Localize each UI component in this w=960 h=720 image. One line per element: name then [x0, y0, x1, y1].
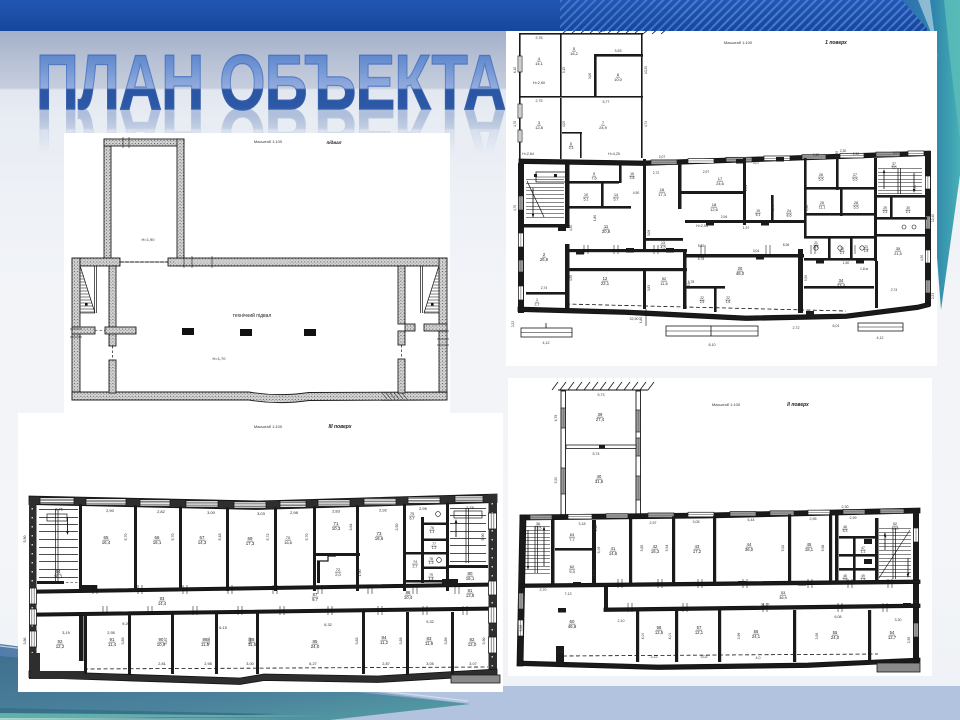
svg-text:11,9: 11,9 — [425, 641, 434, 646]
svg-text:5,50: 5,50 — [804, 275, 808, 281]
svg-text:24,1: 24,1 — [752, 634, 761, 639]
svg-text:2,70: 2,70 — [540, 588, 547, 592]
svg-text:9,20: 9,20 — [122, 622, 129, 626]
svg-text:16,1: 16,1 — [153, 540, 162, 545]
svg-text:4,12: 4,12 — [877, 336, 884, 340]
svg-text:7,13: 7,13 — [565, 592, 572, 596]
svg-text:2,98: 2,98 — [204, 662, 211, 666]
svg-text:2,87: 2,87 — [382, 662, 389, 666]
svg-text:1,6: 1,6 — [726, 300, 731, 304]
svg-text:2,7: 2,7 — [413, 564, 418, 568]
svg-text:1,1: 1,1 — [861, 550, 866, 554]
svg-text:3,0: 3,0 — [892, 166, 897, 170]
svg-text:5,70: 5,70 — [171, 534, 175, 541]
svg-text:Н=2,60: Н=2,60 — [533, 81, 545, 85]
svg-text:3,87: 3,87 — [164, 638, 168, 645]
svg-text:24,0: 24,0 — [831, 635, 840, 640]
svg-text:3,83: 3,83 — [687, 283, 691, 289]
svg-text:3,03: 3,03 — [257, 511, 266, 516]
svg-text:3,00: 3,00 — [207, 510, 216, 515]
svg-text:16,1: 16,1 — [466, 576, 475, 581]
svg-text:Н=2,64: Н=2,64 — [522, 152, 534, 156]
svg-text:3,19: 3,19 — [62, 631, 69, 635]
svg-text:5,48: 5,48 — [218, 534, 222, 541]
svg-text:5,85: 5,85 — [640, 545, 644, 552]
svg-text:5,15: 5,15 — [562, 67, 566, 73]
svg-text:24,23: 24,23 — [761, 603, 770, 607]
svg-text:17,3: 17,3 — [246, 541, 255, 546]
svg-text:12,5: 12,5 — [655, 630, 664, 635]
svg-text:2,42: 2,42 — [594, 525, 598, 532]
svg-text:2,83: 2,83 — [332, 509, 341, 514]
svg-text:2,23: 2,23 — [931, 293, 935, 299]
svg-text:1,50: 1,50 — [843, 261, 850, 265]
svg-text:2,74: 2,74 — [891, 288, 898, 292]
svg-text:III поверх: III поверх — [328, 424, 351, 430]
svg-text:17,3: 17,3 — [658, 192, 667, 197]
svg-text:16,6: 16,6 — [375, 536, 384, 541]
svg-text:9: 9 — [593, 172, 595, 176]
svg-text:20,8: 20,8 — [602, 229, 611, 234]
svg-text:24,6: 24,6 — [716, 181, 725, 186]
svg-text:10,3: 10,3 — [332, 526, 341, 531]
svg-text:2,1: 2,1 — [906, 210, 911, 214]
svg-text:21,5: 21,5 — [894, 251, 903, 256]
svg-text:10: 10 — [584, 193, 588, 197]
svg-text:46,8: 46,8 — [568, 624, 577, 629]
svg-text:10,4: 10,4 — [404, 595, 413, 600]
svg-text:2,8: 2,8 — [630, 176, 635, 180]
svg-text:4,90: 4,90 — [633, 191, 640, 195]
svg-text:5,70: 5,70 — [305, 534, 309, 541]
svg-text:2,95: 2,95 — [810, 517, 817, 521]
svg-text:14,4: 14,4 — [158, 601, 167, 606]
svg-text:5,78: 5,78 — [698, 257, 705, 261]
svg-text:6,01: 6,01 — [833, 324, 840, 328]
svg-text:24,9: 24,9 — [599, 125, 608, 130]
svg-text:1,5: 1,5 — [861, 578, 866, 582]
svg-text:4,05: 4,05 — [562, 121, 566, 127]
svg-text:25: 25 — [820, 201, 824, 205]
svg-text:2,76: 2,76 — [536, 36, 543, 40]
svg-text:Масштаб 1:100: Масштаб 1:100 — [712, 402, 741, 407]
svg-text:2,1: 2,1 — [840, 251, 845, 255]
svg-text:6,27: 6,27 — [309, 662, 316, 666]
svg-text:3,95: 3,95 — [907, 637, 911, 644]
svg-text:2,90: 2,90 — [853, 152, 860, 156]
svg-text:13: 13 — [661, 241, 665, 245]
svg-text:2,82: 2,82 — [157, 509, 166, 514]
svg-text:14,1: 14,1 — [535, 61, 544, 66]
svg-text:1,85: 1,85 — [835, 151, 839, 157]
svg-text:16,3: 16,3 — [651, 549, 660, 554]
svg-text:5,54: 5,54 — [665, 545, 669, 552]
svg-text:4,0: 4,0 — [756, 656, 761, 660]
svg-text:6,08: 6,08 — [835, 615, 842, 619]
svg-text:1,80: 1,80 — [593, 215, 597, 221]
svg-text:6,10: 6,10 — [513, 67, 517, 73]
svg-text:3,03: 3,03 — [592, 570, 596, 577]
svg-text:4,30: 4,30 — [920, 255, 924, 261]
svg-text:5,83: 5,83 — [598, 31, 605, 33]
svg-text:3,86: 3,86 — [207, 638, 211, 645]
svg-text:3,05: 3,05 — [693, 520, 700, 524]
svg-text:2,5: 2,5 — [843, 578, 848, 582]
svg-text:12,6: 12,6 — [710, 207, 719, 212]
svg-text:9,58: 9,58 — [821, 545, 825, 552]
svg-text:5,3: 5,3 — [843, 529, 848, 533]
svg-text:12,40: 12,40 — [931, 214, 935, 222]
svg-text:2,5: 2,5 — [700, 300, 705, 304]
svg-text:12,0: 12,0 — [468, 642, 477, 647]
svg-text:26,9: 26,9 — [540, 257, 549, 262]
svg-text:4,30: 4,30 — [569, 225, 573, 231]
svg-text:5,72: 5,72 — [266, 534, 270, 541]
svg-text:3,86: 3,86 — [23, 638, 27, 645]
svg-text:36,0: 36,0 — [745, 547, 754, 552]
svg-text:8,10: 8,10 — [709, 343, 716, 347]
svg-text:13,5: 13,5 — [535, 526, 542, 530]
svg-text:6,44: 6,44 — [748, 518, 755, 522]
svg-text:3,90: 3,90 — [482, 638, 486, 645]
svg-text:3,85: 3,85 — [248, 638, 252, 645]
svg-text:4,5: 4,5 — [661, 245, 666, 249]
svg-text:5,50: 5,50 — [554, 477, 558, 484]
svg-text:52: 52 — [893, 522, 897, 526]
svg-text:22,1: 22,1 — [601, 281, 610, 286]
svg-text:26: 26 — [819, 173, 823, 177]
svg-text:13,8: 13,8 — [466, 593, 475, 598]
svg-text:4,12: 4,12 — [543, 341, 550, 345]
svg-text:Н=1,70: Н=1,70 — [212, 356, 226, 361]
svg-text:1,1: 1,1 — [430, 530, 435, 534]
svg-text:2,07: 2,07 — [659, 155, 666, 159]
svg-text:31,6: 31,6 — [595, 479, 604, 484]
svg-text:3,02: 3,02 — [701, 655, 708, 659]
svg-text:2,30: 2,30 — [842, 505, 849, 509]
svg-text:3,05: 3,05 — [426, 662, 433, 666]
svg-text:1,8 м: 1,8 м — [860, 267, 869, 271]
svg-text:24: 24 — [787, 209, 791, 213]
svg-text:3,30: 3,30 — [895, 618, 902, 622]
svg-text:14,6: 14,6 — [609, 551, 618, 556]
svg-text:1,42: 1,42 — [914, 600, 918, 607]
svg-text:16,4: 16,4 — [102, 540, 111, 545]
svg-text:3,89: 3,89 — [399, 638, 403, 645]
svg-text:3,06: 3,06 — [588, 73, 592, 79]
svg-text:13,6: 13,6 — [892, 526, 899, 530]
svg-text:2,90: 2,90 — [106, 508, 115, 513]
svg-text:3,50: 3,50 — [395, 524, 399, 531]
svg-text:підвал: підвал — [326, 140, 341, 145]
svg-text:3,07: 3,07 — [753, 161, 760, 165]
svg-text:1,90: 1,90 — [913, 185, 917, 191]
svg-text:3,12: 3,12 — [651, 655, 658, 659]
svg-text:9,7: 9,7 — [312, 597, 318, 602]
svg-text:технічний підвал: технічний підвал — [233, 312, 272, 319]
svg-text:4,7: 4,7 — [814, 245, 819, 249]
svg-text:10,0: 10,0 — [614, 77, 623, 82]
svg-text:1,4: 1,4 — [429, 577, 434, 581]
svg-text:5,5: 5,5 — [819, 177, 824, 181]
svg-text:1,8: 1,8 — [864, 249, 869, 253]
svg-text:3,99: 3,99 — [737, 633, 741, 640]
svg-text:6,32: 6,32 — [324, 623, 331, 627]
svg-text:5,70: 5,70 — [124, 534, 128, 541]
svg-text:7,7: 7,7 — [569, 537, 575, 542]
svg-text:28: 28 — [854, 201, 858, 205]
svg-text:Масштаб 1:100: Масштаб 1:100 — [254, 424, 283, 429]
svg-text:3,83: 3,83 — [355, 638, 359, 645]
svg-text:3,07: 3,07 — [893, 151, 900, 155]
svg-text:9,52: 9,52 — [781, 545, 785, 552]
svg-text:2,99: 2,99 — [850, 516, 857, 520]
svg-text:Масштаб 1:100: Масштаб 1:100 — [254, 139, 283, 144]
svg-text:2,76: 2,76 — [55, 507, 64, 512]
svg-text:12,2: 12,2 — [56, 644, 65, 649]
svg-text:2,7: 2,7 — [535, 302, 540, 306]
svg-text:3,08: 3,08 — [647, 230, 651, 236]
svg-text:5,09: 5,09 — [597, 547, 601, 554]
svg-text:5,1: 5,1 — [584, 197, 589, 201]
svg-text:5,73: 5,73 — [598, 393, 605, 397]
svg-text:2,10: 2,10 — [618, 619, 625, 623]
svg-text:7,6: 7,6 — [591, 177, 596, 181]
svg-text:5,1: 5,1 — [756, 213, 761, 217]
svg-text:2,74: 2,74 — [541, 286, 548, 290]
svg-text:6,15: 6,15 — [219, 626, 226, 630]
svg-text:36,9: 36,9 — [779, 595, 788, 600]
svg-text:3,18: 3,18 — [579, 522, 586, 526]
svg-text:Н=1,90: Н=1,90 — [141, 237, 155, 242]
svg-text:3,07: 3,07 — [469, 662, 476, 666]
svg-text:4,70: 4,70 — [513, 205, 517, 211]
svg-text:11,6: 11,6 — [660, 281, 668, 286]
svg-text:2,72: 2,72 — [793, 326, 800, 330]
svg-text:4,70: 4,70 — [513, 121, 517, 127]
svg-text:36: 36 — [536, 522, 540, 526]
svg-text:1,2: 1,2 — [432, 546, 437, 550]
svg-text:2,0: 2,0 — [335, 572, 341, 577]
svg-text:2,22: 2,22 — [511, 321, 515, 327]
svg-text:2,3: 2,3 — [569, 146, 574, 150]
svg-text:32,50: 32,50 — [630, 317, 639, 321]
svg-text:12,7: 12,7 — [888, 635, 897, 640]
svg-text:5,5: 5,5 — [853, 177, 858, 181]
svg-text:2,99: 2,99 — [419, 506, 428, 511]
svg-text:5,56: 5,56 — [519, 625, 523, 632]
svg-text:2,30: 2,30 — [840, 149, 847, 153]
svg-text:9,23: 9,23 — [557, 650, 564, 654]
svg-text:3,89: 3,89 — [444, 638, 448, 645]
svg-text:2,31: 2,31 — [744, 185, 748, 191]
svg-text:3,89: 3,89 — [121, 638, 125, 645]
svg-text:4,00: 4,00 — [641, 633, 645, 640]
svg-text:4,30: 4,30 — [569, 275, 573, 281]
svg-text:2,40: 2,40 — [771, 205, 775, 211]
svg-text:10,20: 10,20 — [644, 66, 648, 74]
svg-text:2,95: 2,95 — [107, 631, 114, 635]
svg-text:9,32: 9,32 — [426, 620, 433, 624]
svg-text:5,90: 5,90 — [23, 536, 27, 543]
svg-text:2,68: 2,68 — [813, 153, 820, 157]
svg-text:11,1: 11,1 — [819, 205, 826, 209]
svg-text:11,2: 11,2 — [380, 640, 389, 645]
svg-text:8,36: 8,36 — [783, 243, 790, 247]
svg-text:16,8: 16,8 — [284, 540, 293, 545]
svg-text:5,7: 5,7 — [614, 197, 619, 201]
svg-text:4,74: 4,74 — [644, 121, 648, 127]
svg-text:2,98: 2,98 — [290, 510, 299, 515]
svg-text:18,1: 18,1 — [805, 547, 814, 552]
svg-text:3,04: 3,04 — [753, 249, 760, 253]
svg-text:2,94: 2,94 — [721, 215, 728, 219]
svg-text:II поверх: II поверх — [787, 402, 809, 408]
svg-text:4,79: 4,79 — [554, 415, 558, 422]
svg-text:3,30: 3,30 — [805, 205, 809, 211]
svg-text:3,64: 3,64 — [349, 524, 353, 531]
svg-text:5,5: 5,5 — [854, 205, 859, 209]
svg-text:1,80: 1,80 — [639, 317, 643, 323]
svg-text:8,6: 8,6 — [787, 213, 792, 217]
svg-text:3,83: 3,83 — [647, 285, 651, 291]
svg-text:14: 14 — [614, 193, 618, 197]
svg-text:27,4: 27,4 — [596, 417, 605, 422]
svg-text:1,97: 1,97 — [743, 226, 750, 230]
svg-text:2,3: 2,3 — [883, 210, 888, 214]
svg-text:3,53: 3,53 — [615, 49, 622, 53]
svg-text:2,97: 2,97 — [703, 170, 710, 174]
svg-text:16,2: 16,2 — [570, 51, 579, 56]
svg-text:5,90: 5,90 — [481, 534, 485, 541]
svg-text:48,0: 48,0 — [736, 271, 745, 276]
svg-text:17,2: 17,2 — [693, 549, 702, 554]
svg-text:2,92: 2,92 — [379, 507, 388, 512]
svg-text:2,81: 2,81 — [158, 662, 165, 666]
svg-text:3,00: 3,00 — [246, 662, 253, 666]
svg-text:1: 1 — [536, 298, 538, 302]
svg-text:1 поверх: 1 поверх — [825, 40, 847, 46]
svg-text:1,90: 1,90 — [358, 570, 362, 577]
svg-text:6,7: 6,7 — [410, 516, 415, 520]
svg-text:5,74: 5,74 — [593, 452, 600, 456]
svg-text:14,3: 14,3 — [198, 540, 207, 545]
svg-text:Н=4,25: Н=4,25 — [608, 152, 620, 156]
svg-text:3,95: 3,95 — [815, 633, 819, 640]
svg-text:2,72: 2,72 — [653, 171, 660, 175]
svg-text:4,01: 4,01 — [668, 633, 672, 640]
svg-text:9,3: 9,3 — [569, 569, 575, 574]
svg-text:75: 75 — [410, 512, 414, 516]
svg-text:24,0: 24,0 — [311, 644, 320, 649]
svg-text:2,75: 2,75 — [536, 99, 543, 103]
svg-text:74: 74 — [413, 560, 417, 564]
svg-text:12,1: 12,1 — [695, 630, 704, 635]
svg-text:Масштаб 1:100: Масштаб 1:100 — [724, 40, 753, 45]
svg-text:2,97: 2,97 — [650, 521, 657, 525]
svg-text:27: 27 — [853, 173, 857, 177]
svg-text:2,76: 2,76 — [466, 505, 475, 510]
svg-text:12,8: 12,8 — [535, 125, 544, 130]
svg-text:5,77: 5,77 — [603, 100, 610, 104]
svg-text:1,3: 1,3 — [429, 561, 434, 565]
svg-text:16,1: 16,1 — [54, 574, 63, 579]
svg-text:11,4: 11,4 — [108, 642, 117, 647]
